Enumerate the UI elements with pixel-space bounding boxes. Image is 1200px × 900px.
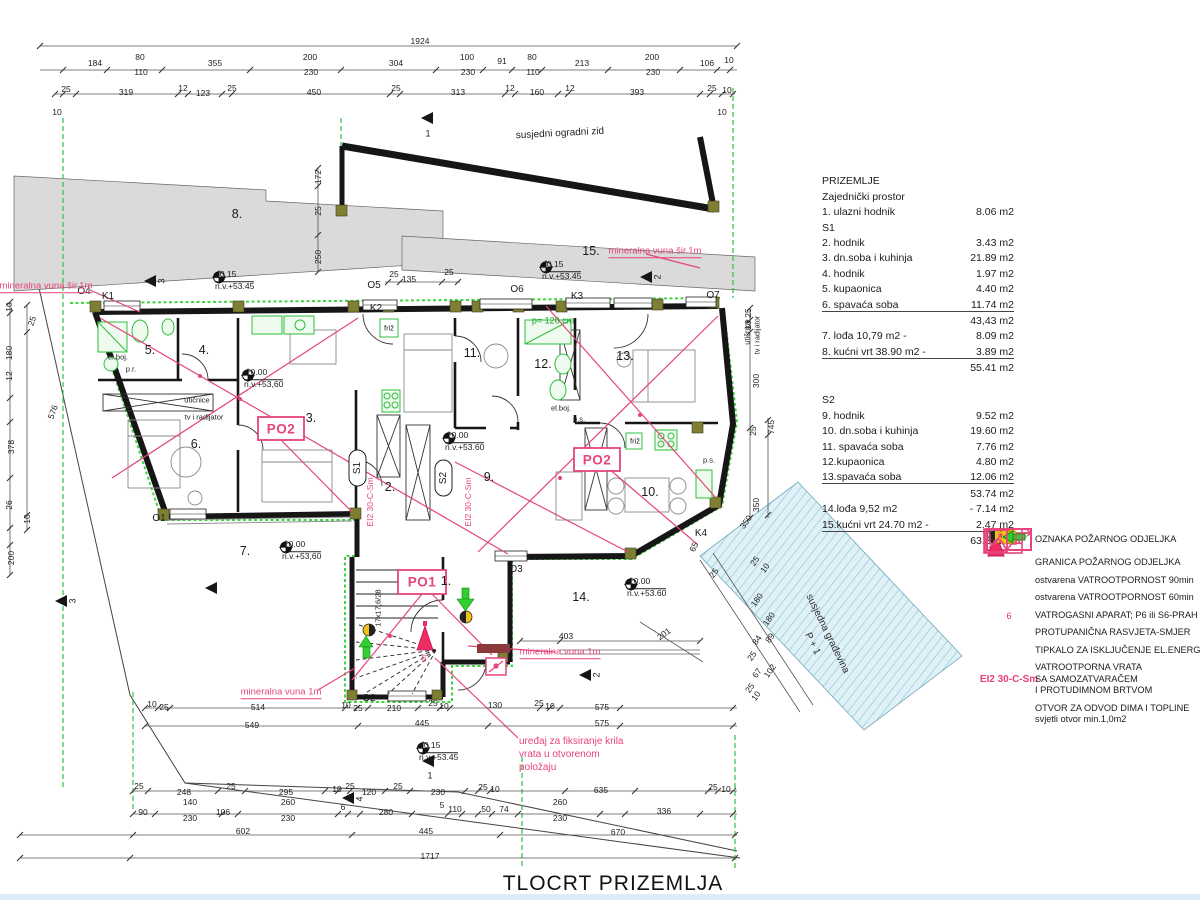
schedule-row: 9. hodnik9.52 m2: [822, 406, 1014, 421]
dim-label: 25: [345, 782, 354, 791]
room-number: 1.: [441, 575, 451, 588]
fixture-label: tv i radijator: [753, 316, 761, 355]
dim-label: 445: [415, 719, 429, 728]
dim-label: 313: [451, 88, 465, 97]
dim-label: 10: [721, 785, 730, 794]
room-name: 13.spavaća soba: [822, 471, 901, 483]
fixture-label: utičnice: [743, 319, 751, 344]
dim-label: 140: [183, 798, 197, 807]
dim-label: 25: [393, 782, 402, 791]
dim-label: 100: [460, 53, 474, 62]
dim-label: 200: [303, 53, 317, 62]
schedule-heading: S1: [822, 218, 1014, 233]
dim-label: 25: [534, 699, 543, 708]
dim-label: 230: [281, 814, 295, 823]
fire-compartment-label: PO2: [267, 422, 296, 436]
opening-code: O6: [510, 285, 523, 295]
fire-legend: PO1OZNAKA POŽARNOG ODJELJKAGRANICA POŽAR…: [983, 528, 1200, 732]
dim-label: 336: [657, 807, 671, 816]
fire-compartment-label: PO2: [583, 453, 612, 467]
fire-note: 6: [421, 654, 426, 664]
schedule-row: 4. hodnik1.97 m2: [822, 264, 1014, 279]
schedule-row: 12.kupaonica4.80 m2: [822, 453, 1014, 468]
fixture-label: tv i radijator: [185, 413, 224, 421]
dim-label: 213: [575, 59, 589, 68]
dim-label: 549: [245, 721, 259, 730]
dim-label: 10: [23, 514, 32, 523]
room-number: 8.: [232, 208, 242, 221]
dim-label: 280: [379, 808, 393, 817]
dim-label: 123: [196, 89, 210, 98]
legend-item: GRANICA POŽARNOG ODJELJKA: [983, 557, 1200, 569]
dim-label: 393: [630, 88, 644, 97]
room-area: 11.74 m2: [971, 299, 1014, 311]
page-title: TLOCRT PRIZEMLJA: [503, 872, 724, 896]
room-name: Zajednički prostor: [822, 191, 905, 203]
dim-label: 210: [387, 704, 401, 713]
schedule-row: 8. kućni vrt 38.90 m2 -3.89 m2: [822, 342, 1014, 358]
room-number: 3.: [306, 412, 316, 425]
legend-text: OTVOR ZA ODVOD DIMA I TOPLINEsvjetli otv…: [1035, 703, 1189, 726]
room-name: S1: [822, 222, 835, 234]
fire-door-code: EI2 30-C-Sm: [464, 477, 473, 526]
unit-label: S1: [353, 462, 363, 474]
bottom-bar: [0, 894, 1200, 900]
dim-label: 575: [595, 719, 609, 728]
legend-text: VATROGASNI APARAT; P6 ili S6-PRAH: [1035, 610, 1198, 622]
dim-label: 25: [444, 268, 453, 277]
dim-label: 135: [402, 275, 416, 284]
room-area: 19.60 m2: [970, 425, 1014, 437]
fixture-label: el.boj.: [551, 404, 571, 412]
room-number: 4.: [199, 344, 209, 357]
schedule-row: 7. lođa 10,79 m2 -8.09 m2: [822, 327, 1014, 342]
dim-label: 10: [332, 785, 341, 794]
section-number: 2: [593, 672, 602, 677]
section-marker-icon: [640, 271, 652, 283]
dim-label: 10: [147, 700, 156, 709]
section-number: 1: [425, 130, 430, 139]
section-marker-icon: [55, 595, 67, 607]
door-fixing-note: uređaj za fiksiranje krila vrata u otvor…: [519, 735, 624, 774]
elevation-marker: ±0.00n.v.+53.60: [442, 431, 484, 453]
elevation-marker: ±0.00n.v.+53.60: [624, 577, 666, 599]
fixture-label: p.s.: [573, 415, 585, 423]
schedule-heading: PRIZEMLJE: [822, 172, 1014, 187]
dim-label: 172: [314, 170, 323, 184]
dim-label: 25: [708, 783, 717, 792]
dim-label: 230: [304, 68, 318, 77]
dim-label: 10: [341, 701, 350, 710]
schedule-row: 2. hodnik3.43 m2: [822, 234, 1014, 249]
dim-label: 91: [497, 57, 506, 66]
parapet-note: p= 120 cm: [532, 317, 574, 326]
dim-label: 25: [314, 206, 323, 215]
elevation-marker: -0.15n.v.+53.45: [539, 260, 581, 282]
legend-text: ostvarena VATROOTPORNOST 90min: [1035, 575, 1194, 587]
schedule-row: 3. dn.soba i kuhinja21.89 m2: [822, 249, 1014, 264]
room-number: 10.: [641, 486, 658, 499]
dim-label: 248: [177, 788, 191, 797]
dim-label: 12: [565, 84, 574, 93]
room-name: 15.kućni vrt 24.70 m2 -: [822, 519, 929, 531]
dim-label: 120: [362, 788, 376, 797]
room-number: 12.: [534, 358, 551, 371]
room-number: 2.: [385, 481, 395, 494]
dim-label: 25: [391, 84, 400, 93]
dim-label: 260: [553, 798, 567, 807]
room-name: 1. ulazni hodnik: [822, 206, 895, 218]
dim-label: 200: [645, 53, 659, 62]
dim-label: 10: [722, 86, 731, 95]
fixture-label: utičnice: [184, 396, 209, 404]
dim-label: 10: [439, 702, 448, 711]
dim-label: 514: [251, 703, 265, 712]
floor-plan-page: 1924184801103552002303041002309180110213…: [0, 0, 1200, 900]
dim-label: 350: [752, 498, 761, 512]
room-area: 21.89 m2: [970, 252, 1014, 264]
room-area: 4.40 m2: [976, 283, 1014, 295]
section-marker-icon: [579, 669, 591, 681]
room-area: 53.74 m2: [970, 488, 1014, 500]
dim-label: 26: [5, 500, 14, 509]
dim-label: 25: [134, 782, 143, 791]
room-name: 10. dn.soba i kuhinja: [822, 425, 918, 437]
dim-label: 25: [159, 703, 168, 712]
section-number: 3: [158, 278, 167, 283]
section-number: 4: [356, 796, 365, 801]
dimension-ticks: [7, 43, 771, 861]
room-schedule: PRIZEMLJEZajednički prostor1. ulazni hod…: [822, 172, 1014, 547]
dim-label: 25: [749, 426, 758, 435]
section-marker-icon: [144, 275, 156, 287]
dim-label: 1924: [411, 37, 430, 46]
opening-code: O7: [706, 291, 719, 301]
dim-label: 200: [7, 551, 16, 565]
dim-label: 12: [505, 84, 514, 93]
room-area: 1.97 m2: [976, 268, 1014, 280]
room-number: 7.: [240, 545, 250, 558]
dim-label: 25: [478, 783, 487, 792]
room-number: 14.: [572, 591, 589, 604]
dim-label: 106: [700, 59, 714, 68]
opening-code: K1: [102, 292, 114, 302]
fixture-label: friž: [630, 437, 640, 445]
dim-label: 319: [119, 88, 133, 97]
dim-label: 300: [752, 374, 761, 388]
room-area: 12.06 m2: [970, 471, 1014, 483]
fire-door-code: EI2 30-C-Sm: [983, 674, 1035, 685]
dim-label: 110: [526, 68, 540, 77]
opening-code: O3: [509, 565, 522, 575]
opening-code: O1: [152, 514, 165, 524]
dim-label: 260: [281, 798, 295, 807]
fire-door-code: EI2 30-C-Sm: [366, 477, 375, 526]
room-name: 5. kupaonica: [822, 283, 882, 295]
dim-label: 25: [353, 704, 362, 713]
dim-label: 80: [527, 53, 536, 62]
legend-item: TIPKALO ZA ISKLJUČENJE EL.ENERGIJE: [983, 645, 1200, 657]
room-area: 3.43 m2: [976, 237, 1014, 249]
dim-label: 6: [341, 803, 346, 812]
dim-label: 378: [7, 440, 16, 454]
dim-label: 110: [134, 68, 148, 77]
fixture-label: el.boj.: [108, 353, 128, 361]
schedule-row: 13.spavaća soba12.06 m2: [822, 468, 1014, 484]
dim-label: 90: [138, 808, 147, 817]
room-number: 15.: [582, 245, 599, 258]
dim-label: 130: [488, 701, 502, 710]
opening-code: O5: [367, 281, 380, 291]
dim-label: 12: [178, 84, 187, 93]
dim-label: 295: [279, 788, 293, 797]
dim-label: 50: [481, 805, 490, 814]
opening-code: K2: [370, 304, 382, 314]
dimension-lines: [10, 46, 813, 858]
furniture: [128, 330, 700, 654]
dim-label: 25: [707, 84, 716, 93]
schedule-total: 53.74 m2: [822, 484, 1014, 499]
dim-label: 635: [594, 786, 608, 795]
fixture-label: 17x17,6/28: [374, 589, 382, 626]
section-marker-icon: [205, 582, 217, 594]
insulation-note: mineralna vuna šir.1m: [609, 246, 702, 258]
legend-item: ostvarena VATROOTPORNOST 90min: [983, 575, 1200, 587]
room-number: 9.: [484, 471, 494, 484]
dim-label: 180: [5, 346, 14, 360]
section-number: 1: [427, 772, 432, 781]
room-name: S2: [822, 394, 835, 406]
dim-label: 5: [440, 801, 445, 810]
room-name: 7. lođa 10,79 m2 -: [822, 330, 907, 342]
legend-text: PROTUPANIČNA RASVJETA-SMJER: [1035, 627, 1190, 639]
legend-text: VATROOTPORNA VRATASA SAMOZATVARAČEMI PRO…: [1035, 662, 1152, 697]
section-number: 2: [654, 274, 663, 279]
room-area: 43,43 m2: [970, 315, 1014, 327]
fixture-label: p.s.: [703, 456, 715, 464]
dim-label: 575: [595, 703, 609, 712]
section-marker-icon: [421, 112, 433, 124]
dim-label: 355: [208, 59, 222, 68]
dim-label: 80: [135, 53, 144, 62]
room-area: 4.80 m2: [976, 456, 1014, 468]
schedule-total: 55.41 m2: [822, 359, 1014, 374]
dim-label: 10: [717, 108, 726, 117]
legend-text: ostvarena VATROOTPORNOST 60min: [1035, 592, 1194, 604]
room-name: 4. hodnik: [822, 268, 865, 280]
dim-label: 10: [490, 785, 499, 794]
section-number: 3: [69, 598, 78, 603]
extinguisher-count: 6: [1006, 611, 1011, 621]
dim-label: 450: [307, 88, 321, 97]
fixture-label: friž: [384, 324, 394, 332]
schedule-heading: Zajednički prostor: [822, 187, 1014, 202]
room-name: PRIZEMLJE: [822, 175, 880, 187]
room-name: 8. kućni vrt 38.90 m2 -: [822, 346, 926, 358]
fixture-label: p.r.: [126, 365, 136, 373]
dim-label: 250: [314, 250, 323, 264]
elevation-marker: ±0.00n.v.+53,60: [241, 368, 283, 390]
dim-label: 403: [559, 632, 573, 641]
dim-label: 25: [744, 308, 753, 317]
room-name: 2. hodnik: [822, 237, 865, 249]
dim-label: 10: [545, 702, 554, 711]
schedule-heading: S2: [822, 391, 1014, 406]
room-number: 5.: [145, 344, 155, 357]
dim-label: 230: [461, 68, 475, 77]
dim-label: 106: [216, 808, 230, 817]
dim-label: 230: [431, 788, 445, 797]
dim-label: 670: [611, 828, 625, 837]
opening-code: O2: [362, 694, 375, 704]
room-area: 9.52 m2: [976, 410, 1014, 422]
dim-label: 25: [61, 85, 70, 94]
schedule-row: 11. spavaća soba7.76 m2: [822, 437, 1014, 452]
insulation-note: mineralna vuna 1m: [241, 687, 322, 699]
room-area: 8.09 m2: [976, 330, 1014, 342]
legend-text: OZNAKA POŽARNOG ODJELJKA: [1035, 534, 1176, 546]
schedule-total: 43,43 m2: [822, 312, 1014, 327]
dim-label: 12: [5, 371, 14, 380]
room-name: 3. dn.soba i kuhinja: [822, 252, 912, 264]
schedule-row: 1. ulazni hodnik8.06 m2: [822, 203, 1014, 218]
dim-label: 10: [5, 302, 14, 311]
room-area: 8.06 m2: [976, 206, 1014, 218]
legend-item: ostvarena VATROOTPORNOST 60min: [983, 592, 1200, 604]
dim-label: 230: [553, 814, 567, 823]
room-name: 11. spavaća soba: [822, 441, 904, 453]
room-area: 3.89 m2: [976, 346, 1014, 358]
fire-compartment-lines: [90, 254, 718, 738]
elevation-marker: ±0.00n.v.+53,60: [279, 540, 321, 562]
legend-item: OTVOR ZA ODVOD DIMA I TOPLINEsvjetli otv…: [983, 703, 1200, 726]
schedule-row: 6. spavaća soba11.74 m2: [822, 295, 1014, 311]
dim-label: 10: [724, 56, 733, 65]
insulation-note: mineralna vuna šir.1m: [0, 281, 92, 293]
dim-label: 74: [499, 805, 508, 814]
schedule-row: 14.lođa 9,52 m2- 7.14 m2: [822, 500, 1014, 515]
opening-code: K4: [695, 529, 707, 539]
room-name: 6. spavaća soba: [822, 299, 898, 311]
dim-label: 184: [88, 59, 102, 68]
legend-text: TIPKALO ZA ISKLJUČENJE EL.ENERGIJE: [1035, 645, 1200, 657]
elevation-marker: -0.15n.v.+53.45: [416, 741, 458, 763]
dim-label: 25: [389, 270, 398, 279]
door-code-label: EI2 30-C-Sm: [980, 674, 1038, 685]
room-area: 55.41 m2: [970, 362, 1014, 374]
dim-label: 1717: [421, 852, 440, 861]
dim-label: 602: [236, 827, 250, 836]
dim-label: 230: [646, 68, 660, 77]
insulation-note: mineralna vuna 1m: [520, 647, 601, 659]
legend-item: EI2 30-C-SmVATROOTPORNA VRATASA SAMOZATV…: [983, 662, 1200, 697]
dim-label: 445: [419, 827, 433, 836]
fire-compartment-label: PO1: [408, 575, 437, 589]
elevation-marker: -0.15n.v.+53.45: [212, 270, 254, 292]
dim-label: 160: [530, 88, 544, 97]
room-number: 11.: [464, 347, 480, 360]
legend-item: PROTUPANIČNA RASVJETA-SMJER: [983, 627, 1200, 639]
room-area: - 7.14 m2: [970, 503, 1014, 515]
dim-label: 25: [428, 699, 437, 708]
dim-label: 25: [227, 84, 236, 93]
opening-code: K3: [571, 292, 583, 302]
schedule-row: 10. dn.soba i kuhinja19.60 m2: [822, 422, 1014, 437]
unit-label: S2: [439, 472, 449, 484]
room-name: 12.kupaonica: [822, 456, 884, 468]
room-number: 13.: [616, 350, 633, 363]
room-name: 9. hodnik: [822, 410, 865, 422]
dim-label: 110: [448, 805, 462, 814]
dim-label: 230: [183, 814, 197, 823]
dim-label: 10: [52, 108, 61, 117]
room-name: 14.lođa 9,52 m2: [822, 503, 897, 515]
schedule-row: 5. kupaonica4.40 m2: [822, 280, 1014, 295]
room-area: 7.76 m2: [976, 441, 1014, 453]
dim-label: 25: [226, 782, 235, 791]
extinguisher-icon: 6: [983, 610, 1035, 621]
legend-item: 6VATROGASNI APARAT; P6 ili S6-PRAH: [983, 610, 1200, 622]
legend-text: GRANICA POŽARNOG ODJELJKA: [1035, 557, 1181, 569]
dim-label: 304: [389, 59, 403, 68]
dim-label: 745: [767, 420, 776, 434]
room-number: 6.: [191, 438, 201, 451]
